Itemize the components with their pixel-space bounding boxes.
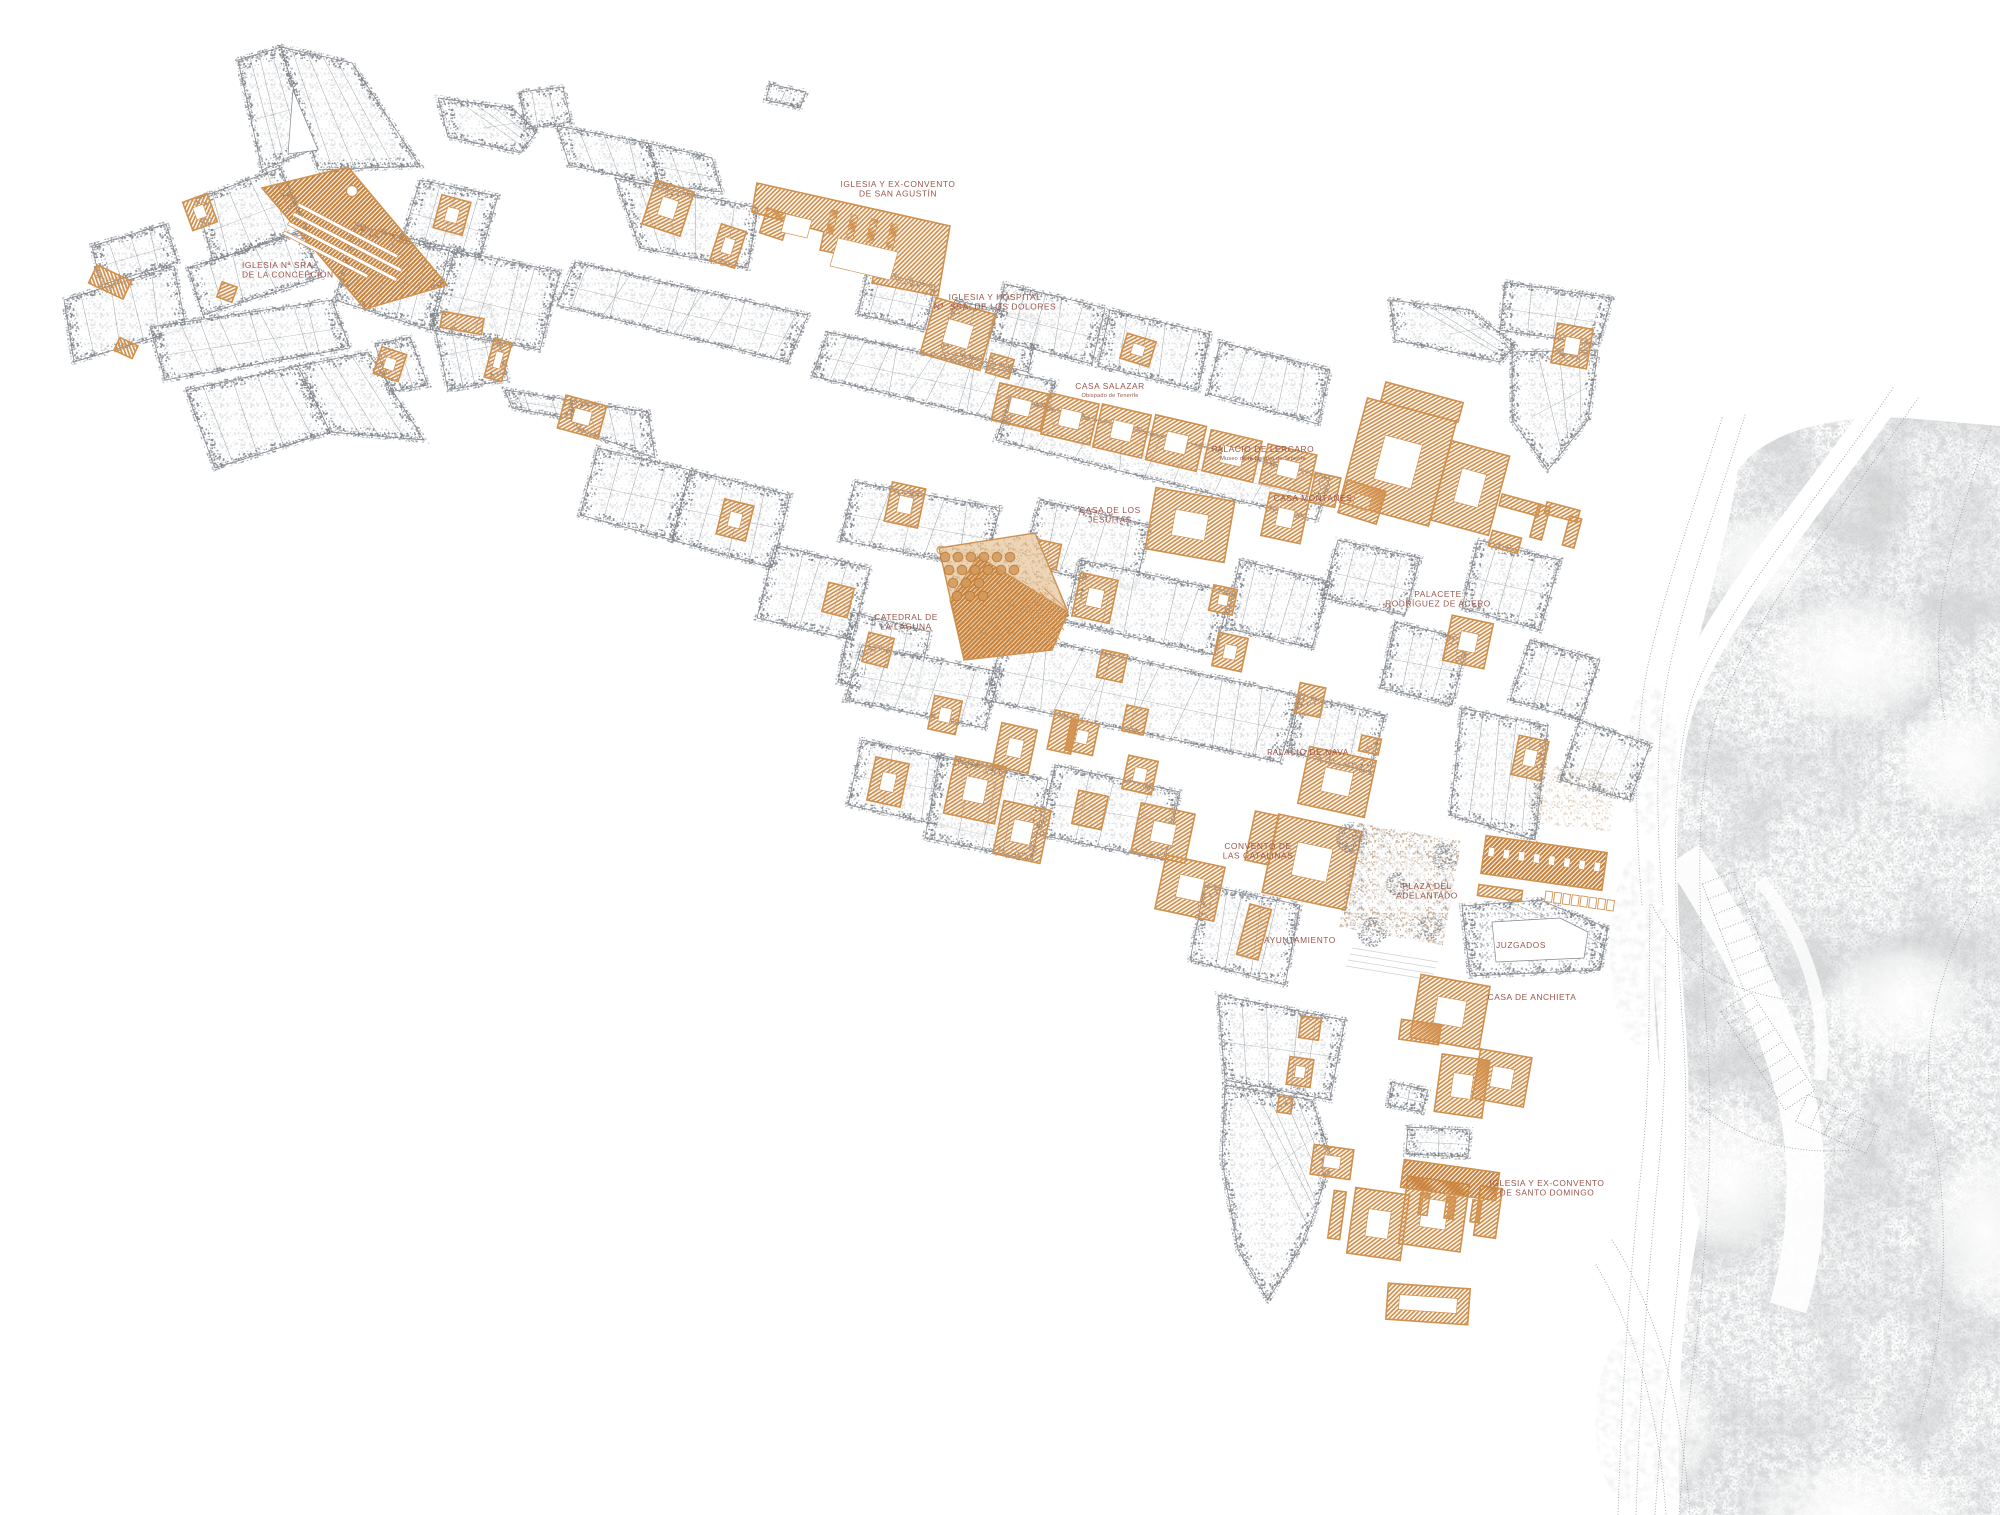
svg-text:JUZGADOS: JUZGADOS [1496, 940, 1546, 950]
svg-text:IGLESIA Y EX-CONVENTO: IGLESIA Y EX-CONVENTO [1490, 1178, 1605, 1188]
svg-text:ADELANTADO: ADELANTADO [1396, 891, 1458, 901]
svg-text:IGLESIA Y HOSPITAL: IGLESIA Y HOSPITAL [949, 292, 1042, 302]
svg-text:RODRÍGUEZ DE ACERO: RODRÍGUEZ DE ACERO [1385, 599, 1491, 609]
svg-text:PALACETE: PALACETE [1414, 589, 1462, 599]
svg-text:LA LAGUNA: LA LAGUNA [880, 622, 932, 632]
svg-text:AYUNTAMIENTO: AYUNTAMIENTO [1264, 935, 1336, 945]
svg-text:PALACIO DE LERCARO: PALACIO DE LERCARO [1212, 444, 1314, 454]
svg-text:Obispado de Tenerife: Obispado de Tenerife [1081, 393, 1138, 399]
svg-text:DE SAN AGUSTÍN: DE SAN AGUSTÍN [859, 189, 937, 199]
svg-text:CASA SALAZAR: CASA SALAZAR [1075, 381, 1144, 391]
svg-text:CASA DE ANCHIETA: CASA DE ANCHIETA [1488, 992, 1577, 1002]
svg-text:JESUITAS: JESUITAS [1088, 515, 1132, 525]
svg-text:CATEDRAL DE: CATEDRAL DE [874, 612, 938, 622]
svg-text:Museo de la historia de Teneri: Museo de la historia de Tenerife [1220, 456, 1306, 462]
svg-text:PALACIO DE NAVA: PALACIO DE NAVA [1267, 747, 1349, 757]
svg-text:IGLESIA Nª SRA.: IGLESIA Nª SRA. [242, 260, 316, 270]
svg-text:IGLESIA Y EX-CONVENTO: IGLESIA Y EX-CONVENTO [841, 179, 956, 189]
svg-text:CASA MONTAÑES: CASA MONTAÑES [1274, 493, 1353, 503]
svg-text:PLAZA DEL: PLAZA DEL [1402, 881, 1452, 891]
svg-text:CASA DE LOS: CASA DE LOS [1079, 505, 1140, 515]
svg-text:LAS CATALINAS: LAS CATALINAS [1223, 851, 1294, 861]
svg-text:CONVENTO DE: CONVENTO DE [1224, 841, 1291, 851]
svg-text:Nª. SRA. DE LOS DOLORES: Nª. SRA. DE LOS DOLORES [934, 302, 1056, 312]
svg-text:DE LA CONCEPCIÓN: DE LA CONCEPCIÓN [242, 270, 334, 280]
svg-text:DE SANTO DOMINGO: DE SANTO DOMINGO [1500, 1188, 1595, 1198]
